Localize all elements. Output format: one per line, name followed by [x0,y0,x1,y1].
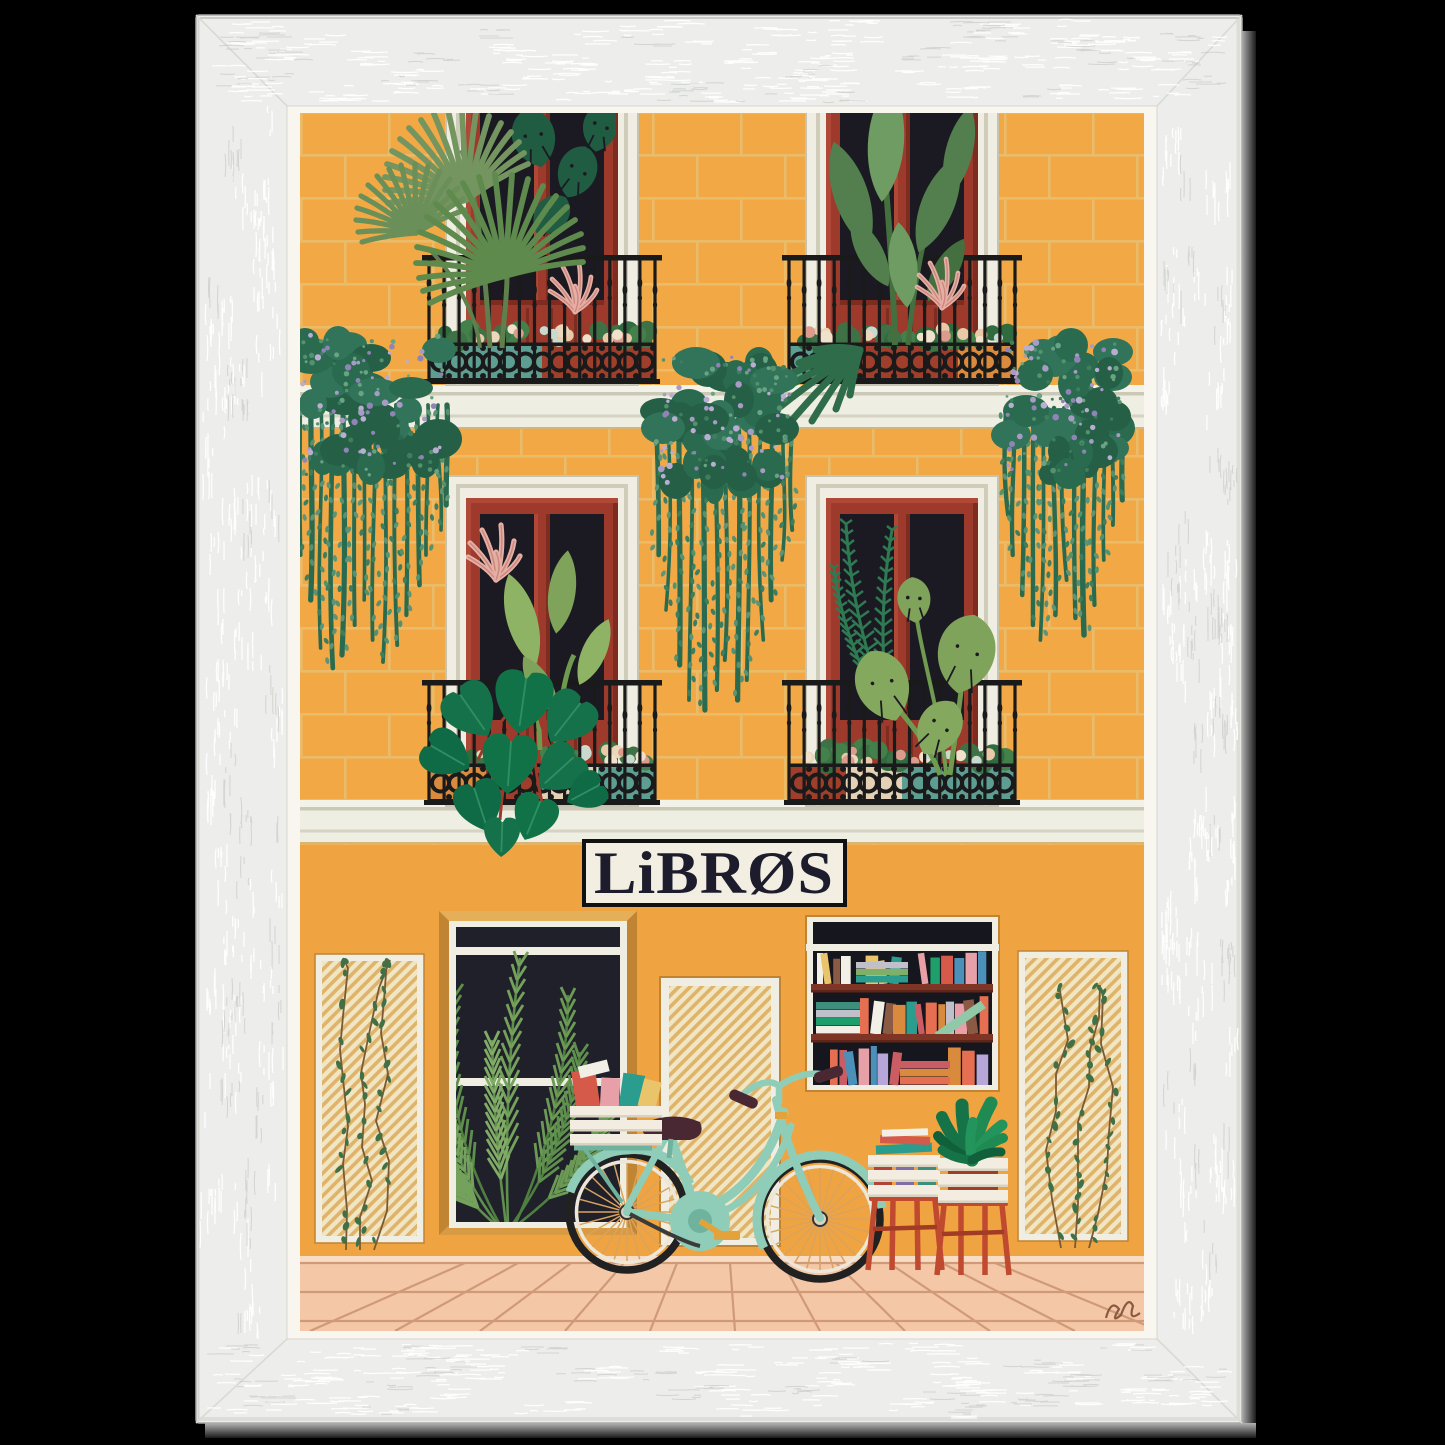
svg-text:LiBRØS: LiBRØS [594,840,834,906]
